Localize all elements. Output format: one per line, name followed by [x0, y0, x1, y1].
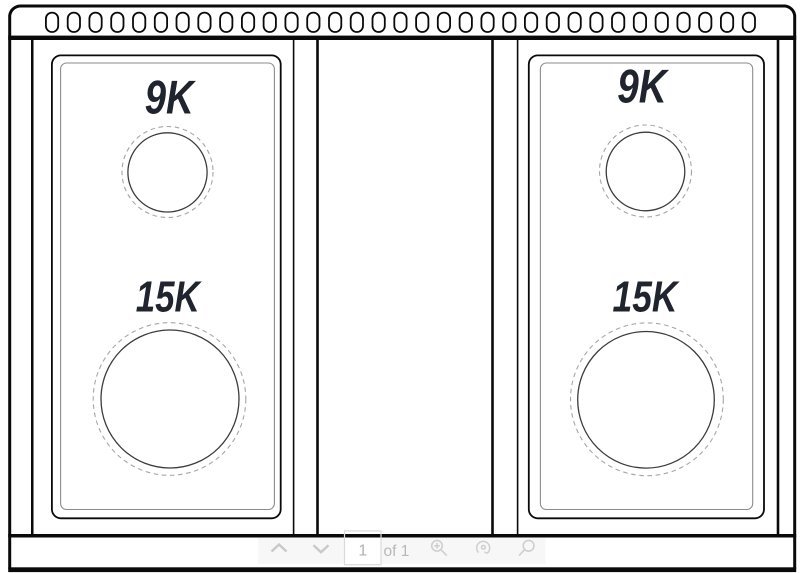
- svg-text:15K: 15K: [613, 273, 681, 322]
- svg-text:1: 1: [358, 542, 367, 559]
- svg-text:of 1: of 1: [384, 543, 410, 560]
- svg-text:15K: 15K: [136, 273, 203, 322]
- svg-text:9K: 9K: [145, 70, 196, 123]
- svg-text:9K: 9K: [617, 59, 669, 112]
